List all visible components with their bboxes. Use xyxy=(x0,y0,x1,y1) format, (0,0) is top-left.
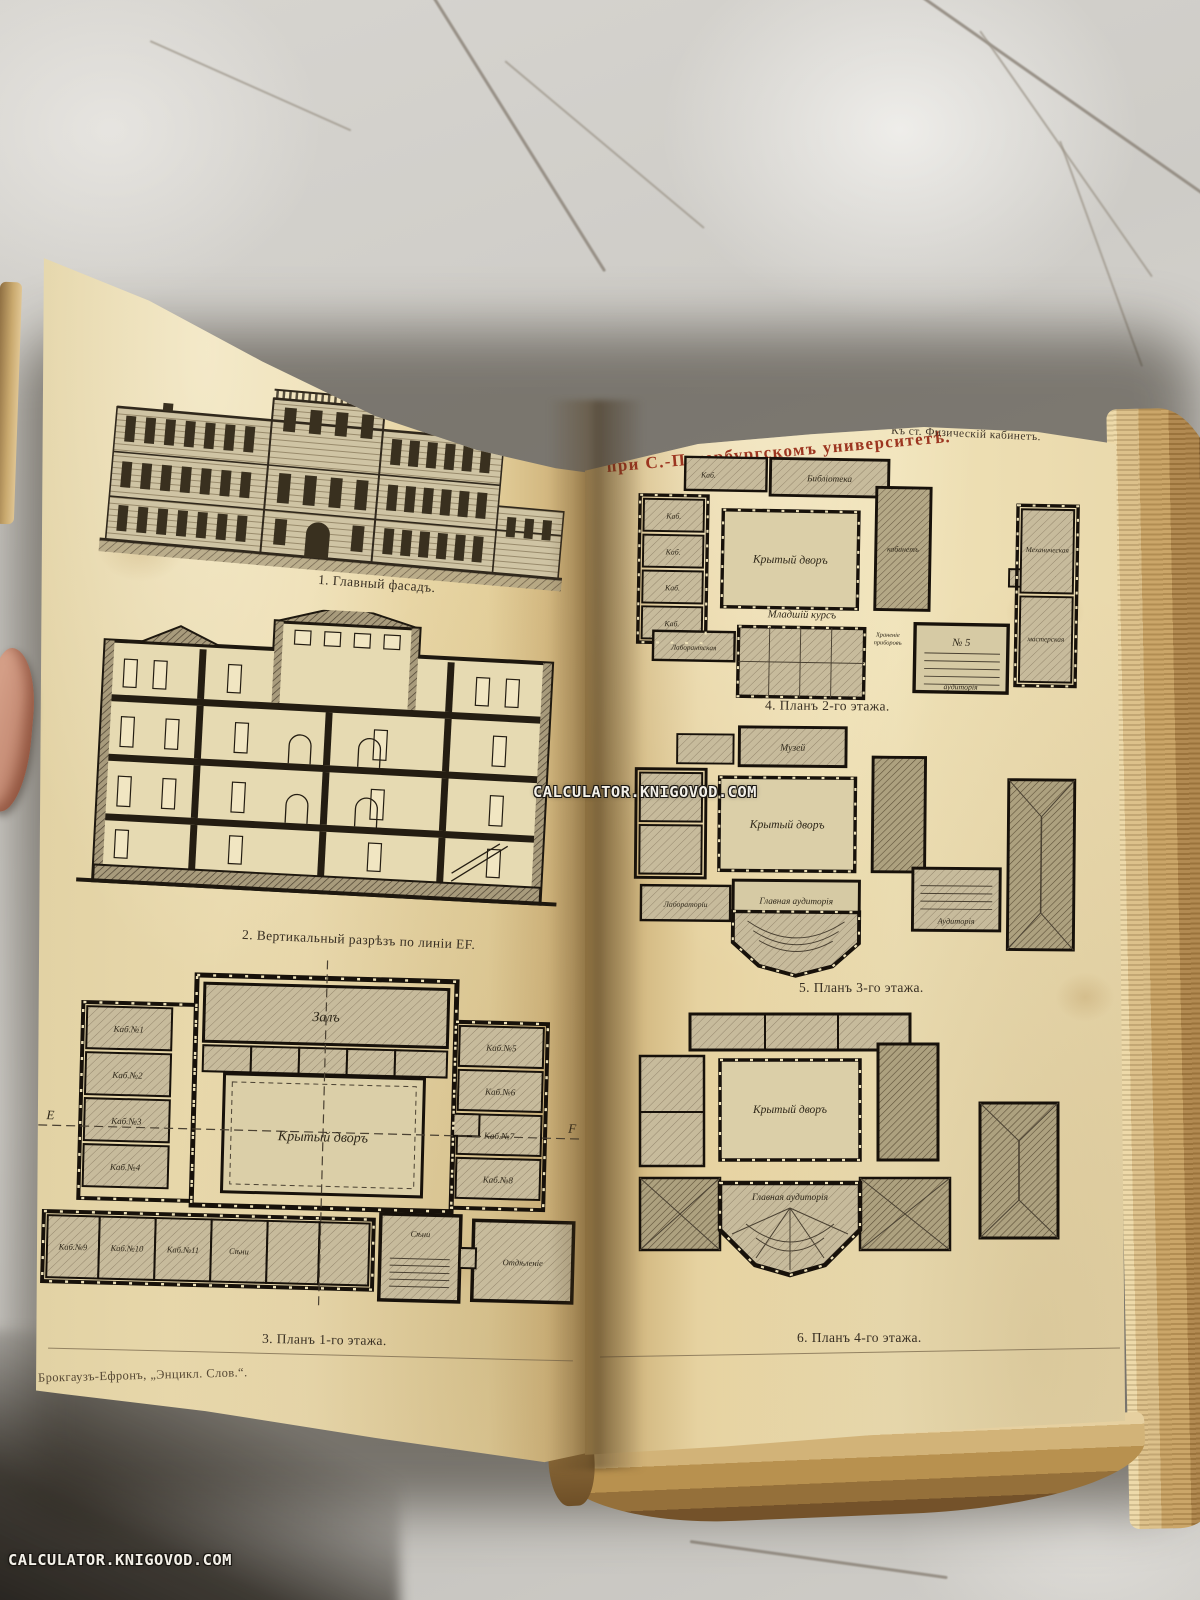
plate-bottom-rule-left xyxy=(48,1348,573,1362)
watermark-center: CALCULATOR.KNIGOVOD.COM xyxy=(533,783,757,801)
watermark-corner: CALCULATOR.KNIGOVOD.COM xyxy=(8,1551,232,1569)
marble-vein xyxy=(690,1540,948,1579)
marble-highlight xyxy=(640,0,1160,340)
caption-fig5: 5. Планъ 3-го этажа. xyxy=(799,980,924,996)
fig3-label-point-e: E xyxy=(45,1107,54,1122)
caption-fig2: 2. Вертикальный разрѣзъ по линіи EF. xyxy=(242,927,476,953)
plate-bottom-rule-right xyxy=(600,1347,1120,1357)
fig4-label-junior: Младшій курсъ xyxy=(767,609,837,621)
caption-fig4: 4. Планъ 2-го этажа. xyxy=(765,697,890,714)
photo-of-open-book: ФИЗИЧЕСКІЙ ИНСТИТУТЪ xyxy=(0,0,1200,1600)
figure-plan-floor4: Крытый дворъ Главная аудиторія xyxy=(620,1008,1070,1308)
marble-vein xyxy=(504,60,704,229)
marble-vein xyxy=(429,0,606,272)
figure-plan-floor1: Залъ Крытый дворъ Каб.№1 Каб.№2 Каб.№3 К… xyxy=(34,953,588,1317)
caption-fig3: 3. Планъ 1-го этажа. xyxy=(262,1331,387,1349)
figure-vertical-section xyxy=(66,597,579,931)
fig4-label-storage1: Храненіе xyxy=(875,632,900,639)
publisher-imprint: Брокгаузъ-Ефронъ, „Энцикл. Слов.“. xyxy=(38,1365,248,1385)
figure-plan-floor3: Музей Крытый дворъ Лабораторіи Главная а… xyxy=(614,720,1086,986)
marble-vein xyxy=(899,0,1200,224)
caption-fig6: 6. Планъ 4-го этажа. xyxy=(797,1330,922,1346)
figure-plan-floor2: Библіотека Каб. Каб. Каб. Каб. Каб. Крыт… xyxy=(620,448,1086,708)
fig4-label-storage2: приборовъ xyxy=(874,639,903,646)
marble-vein xyxy=(150,40,352,131)
fig3-label-point-f: F xyxy=(567,1121,577,1136)
